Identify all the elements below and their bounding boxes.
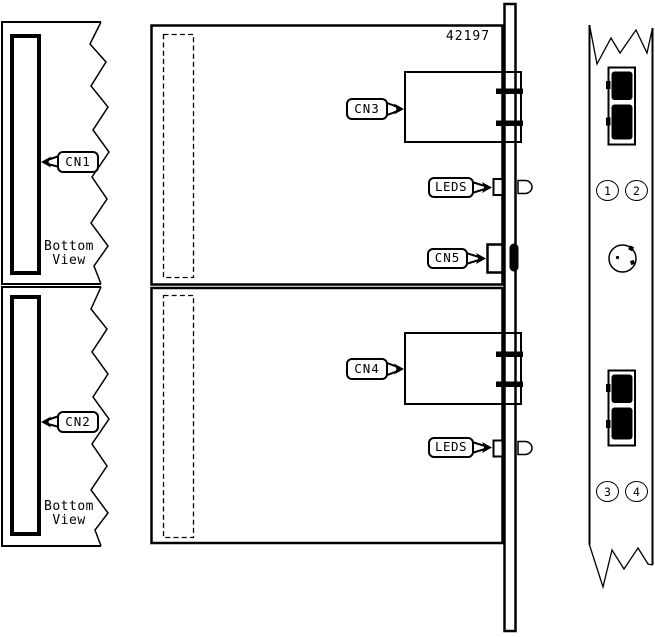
- line-art-layer: [0, 0, 655, 637]
- cn3-mount-tab-bottom: [496, 121, 523, 127]
- caption-upper-line2: View: [40, 254, 98, 268]
- faceplate-front-view: [590, 25, 653, 587]
- callout-cn3-label: CN3: [354, 103, 380, 116]
- faceplate-side-edge: [505, 4, 516, 631]
- edge-connector-outline-upper: [164, 35, 194, 278]
- cn2-edge-connector: [12, 297, 39, 534]
- callout-leds-upper-label: LEDS: [435, 181, 467, 194]
- port-number-2: 2: [625, 180, 648, 201]
- bottom-view-caption-lower: Bottom View: [40, 500, 98, 528]
- callout-cn4-label: CN4: [354, 363, 380, 376]
- callout-cn5-label: CN5: [435, 252, 461, 265]
- part-number: 42197: [444, 29, 492, 44]
- din-connector: [609, 245, 636, 272]
- bottom-view-caption-upper: Bottom View: [40, 240, 98, 268]
- cn5-barrel: [510, 244, 519, 272]
- jack-port-1: [612, 72, 633, 101]
- pcb-upper: [152, 26, 503, 285]
- cn4-mount-tab-top: [496, 352, 523, 358]
- callout-leds-lower: LEDS: [428, 437, 474, 458]
- led-bulb-lower: [518, 442, 532, 455]
- pcb-lower: [152, 288, 503, 543]
- dual-jack-lower: [606, 371, 635, 446]
- callout-cn2: CN2: [57, 411, 99, 433]
- dual-jack-upper: [606, 68, 635, 145]
- cn3-mount-tab-top: [496, 89, 523, 95]
- callout-leds-lower-label: LEDS: [435, 441, 467, 454]
- callout-cn2-label: CN2: [65, 416, 91, 429]
- port-number-2-label: 2: [633, 184, 640, 198]
- led-bulb-upper: [518, 181, 532, 194]
- jack-port-3: [612, 375, 633, 404]
- callout-cn1: CN1: [57, 151, 99, 173]
- port-number-1: 1: [596, 180, 619, 201]
- port-number-4: 4: [625, 481, 648, 502]
- cn1-edge-connector: [12, 36, 39, 273]
- callout-cn1-label: CN1: [65, 156, 91, 169]
- torn-edge-faceplate-bottom: [590, 545, 653, 587]
- callout-arrows: [41, 103, 492, 453]
- callout-leds-upper: LEDS: [428, 177, 474, 198]
- jack-port-2: [612, 105, 633, 140]
- port-number-3-label: 3: [604, 485, 611, 499]
- jack-port-4: [612, 408, 633, 440]
- edge-connector-outline-lower: [164, 296, 194, 538]
- hardware-installation-diagram: 42197 CN1 CN2 CN3 LEDS CN5 CN4 LEDS Bott…: [0, 0, 655, 637]
- port-number-1-label: 1: [604, 184, 611, 198]
- port-number-3: 3: [596, 481, 619, 502]
- callout-cn5: CN5: [427, 248, 468, 269]
- caption-upper-line1: Bottom: [40, 240, 98, 254]
- torn-edge-faceplate-top: [590, 25, 653, 64]
- callout-cn4: CN4: [346, 358, 388, 380]
- cn5-connector: [488, 244, 519, 273]
- caption-lower-line1: Bottom: [40, 500, 98, 514]
- caption-lower-line2: View: [40, 514, 98, 528]
- callout-cn3: CN3: [346, 98, 388, 120]
- cn4-mount-tab-bottom: [496, 382, 523, 388]
- port-number-4-label: 4: [633, 485, 640, 499]
